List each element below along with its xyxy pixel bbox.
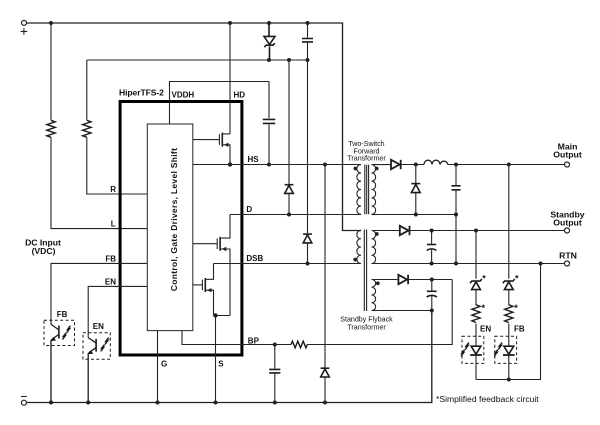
svg-text:HS: HS [248, 155, 260, 164]
svg-text:FB: FB [514, 325, 525, 334]
svg-text:BP: BP [248, 336, 260, 345]
svg-text:Control, Gate Drivers, Level S: Control, Gate Drivers, Level Shift [169, 148, 179, 291]
svg-text:HiperTFS-2: HiperTFS-2 [119, 87, 164, 97]
svg-text:Output: Output [553, 217, 582, 227]
svg-text:D: D [246, 205, 252, 214]
svg-text:EN: EN [480, 325, 491, 334]
svg-text:*Simplified feedback circuit: *Simplified feedback circuit [436, 394, 539, 404]
svg-text:Transformer: Transformer [347, 155, 386, 163]
svg-text:RTN: RTN [559, 251, 577, 261]
svg-text:*: * [514, 303, 518, 313]
svg-text:*: * [515, 273, 519, 283]
svg-text:Output: Output [553, 150, 582, 160]
svg-text:R: R [110, 185, 116, 194]
svg-text:L: L [111, 220, 116, 229]
svg-text:EN: EN [105, 277, 116, 286]
svg-text:Standby Flyback: Standby Flyback [340, 316, 393, 324]
svg-text:DSB: DSB [246, 254, 263, 263]
svg-text:*: * [482, 303, 486, 313]
svg-text:VDDH: VDDH [172, 90, 195, 99]
svg-text:FB: FB [57, 310, 68, 319]
svg-text:HD: HD [234, 90, 246, 99]
svg-text:*: * [482, 273, 486, 283]
svg-text:S: S [218, 359, 224, 368]
svg-text:(VDC): (VDC) [32, 246, 56, 256]
svg-text:EN: EN [93, 322, 104, 331]
svg-text:Transformer: Transformer [347, 323, 386, 331]
svg-text:FB: FB [105, 254, 116, 263]
svg-text:G: G [161, 359, 167, 368]
